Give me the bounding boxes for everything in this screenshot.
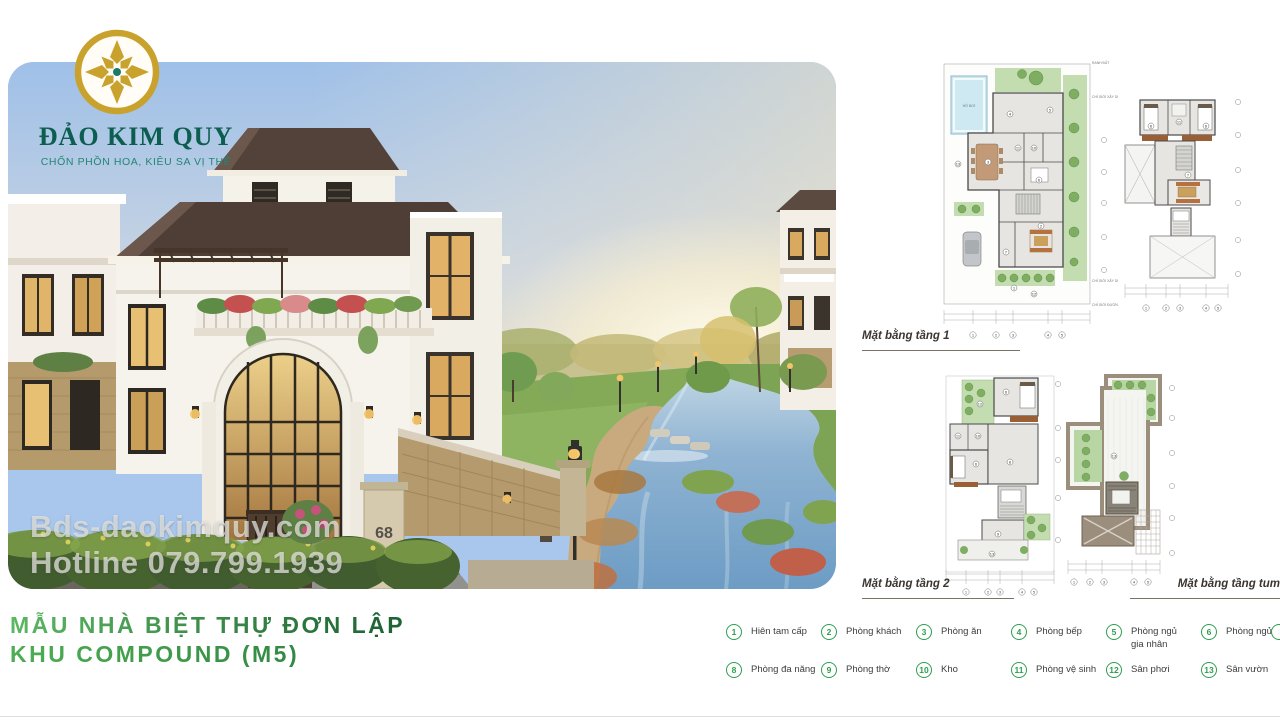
plan-label-floor1: Mặt bằng tầng 1 [862, 330, 950, 342]
legend-number: 5 [1106, 624, 1122, 640]
legend-item: 1 Hiên tam cấp [726, 624, 807, 640]
plan-annotation: CHỈ GIỚI ĐƯỜNG ĐỎ [1092, 302, 1118, 307]
legend-number: 4 [1011, 624, 1027, 640]
legend-label-line1: Phòng ngủ [1131, 626, 1177, 639]
room-marker: 10 [1032, 146, 1037, 151]
brand-tagline: CHỐN PHỒN HOA, KIÊU SA VỊ THẾ [30, 156, 242, 168]
legend-label: Sân phơi [1131, 662, 1169, 677]
legend-item: 3 Phòng ăn [916, 624, 982, 640]
gate-number: 68 [375, 525, 393, 542]
plan-underline-tum [1130, 598, 1280, 599]
legend-item: 5 Phòng ngủ gia nhân [1106, 624, 1177, 652]
plan-annotation: CHỈ GIỚI XÂY DỰNG [1092, 278, 1118, 283]
legend-item-partial [1271, 624, 1280, 640]
legend-number: 10 [916, 662, 932, 678]
plan-label-floor2: Mặt bằng tầng 2 [862, 578, 950, 590]
room-marker: 12 [978, 402, 983, 407]
legend-label: Phòng đa năng [751, 662, 815, 677]
plan-underline-floor1 [862, 350, 1020, 351]
legend-item: 9 Phòng thờ [821, 662, 890, 678]
floor-plan-upper: 6 11 6 7 1 2 3 4 [1118, 60, 1280, 350]
legend-item: 12 Sân phơi [1106, 662, 1169, 678]
page-title: MẪU NHÀ BIỆT THỰ ĐƠN LẬP KHU COMPOUND (M… [10, 611, 405, 669]
legend-item: 2 Phòng khách [821, 624, 901, 640]
pool-label: HỒ BƠI [963, 103, 976, 108]
legend-item: 13 Sân vườn [1201, 662, 1268, 678]
legend-number [1271, 624, 1280, 640]
legend-number: 9 [821, 662, 837, 678]
plan-annotation: CHỈ GIỚI XÂY DỰNG [1092, 94, 1118, 99]
legend-number: 1 [726, 624, 742, 640]
room-marker: 12 [1032, 292, 1037, 297]
watermark-site: Bds-daokimquy.com [30, 509, 341, 545]
legend-label: Phòng ăn [941, 624, 982, 639]
legend-item: 8 Phòng đa năng [726, 662, 815, 678]
legend-item: 11 Phòng vệ sinh [1011, 662, 1096, 678]
legend-label: Phòng bếp [1036, 624, 1082, 639]
legend-label-line2: gia nhân [1131, 639, 1177, 652]
legend-label: Hiên tam cấp [751, 624, 807, 639]
legend-number: 6 [1201, 624, 1217, 640]
page-title-line2: KHU COMPOUND (M5) [10, 640, 405, 669]
page-bottom-divider [0, 716, 1280, 717]
room-marker: 13 [1112, 454, 1117, 459]
legend-label: Phòng vệ sinh [1036, 662, 1096, 677]
legend-label: Phòng ngủ gia nhân [1131, 624, 1177, 652]
plan-label-tum: Mặt bằng tầng tum [1130, 578, 1280, 590]
legend-number: 3 [916, 624, 932, 640]
room-marker: 13 [990, 552, 995, 557]
room-marker: 10 [976, 434, 981, 439]
room-marker: 13 [956, 162, 961, 167]
legend-number: 13 [1201, 662, 1217, 678]
legend-label: Phòng khách [846, 624, 901, 639]
plan-underline-floor2 [862, 598, 1014, 599]
legend-label: Sân vườn [1226, 662, 1268, 677]
legend-label: Phòng thờ [846, 662, 890, 677]
legend-number: 2 [821, 624, 837, 640]
floor-plan-tum: 13 1 2 3 4 5 [1062, 368, 1187, 600]
legend-number: 11 [1011, 662, 1027, 678]
brochure-page: 68 [0, 0, 1280, 720]
plan-annotation: RANH ĐẤT [1092, 61, 1109, 65]
brand-name: ĐẢO KIM QUY [36, 122, 236, 152]
page-title-line1: MẪU NHÀ BIỆT THỰ ĐƠN LẬP [10, 611, 405, 640]
floor-plan-1: HỒ BƠI [936, 52, 1118, 344]
legend-label: Phòng ngủ [1226, 624, 1272, 639]
brand-emblem-icon [73, 28, 161, 116]
floor-plan-2: 12 6 11 10 6 8 9 13 [936, 368, 1064, 600]
legend-number: 8 [726, 662, 742, 678]
legend-number: 12 [1106, 662, 1122, 678]
left-villa [8, 194, 126, 470]
legend-label: Kho [941, 662, 958, 677]
legend-item: 6 Phòng ngủ [1201, 624, 1272, 640]
watermark-hotline: Hotline 079.799.1939 [30, 545, 343, 581]
legend-item: 4 Phòng bếp [1011, 624, 1082, 640]
legend-item: 10 Kho [916, 662, 958, 678]
